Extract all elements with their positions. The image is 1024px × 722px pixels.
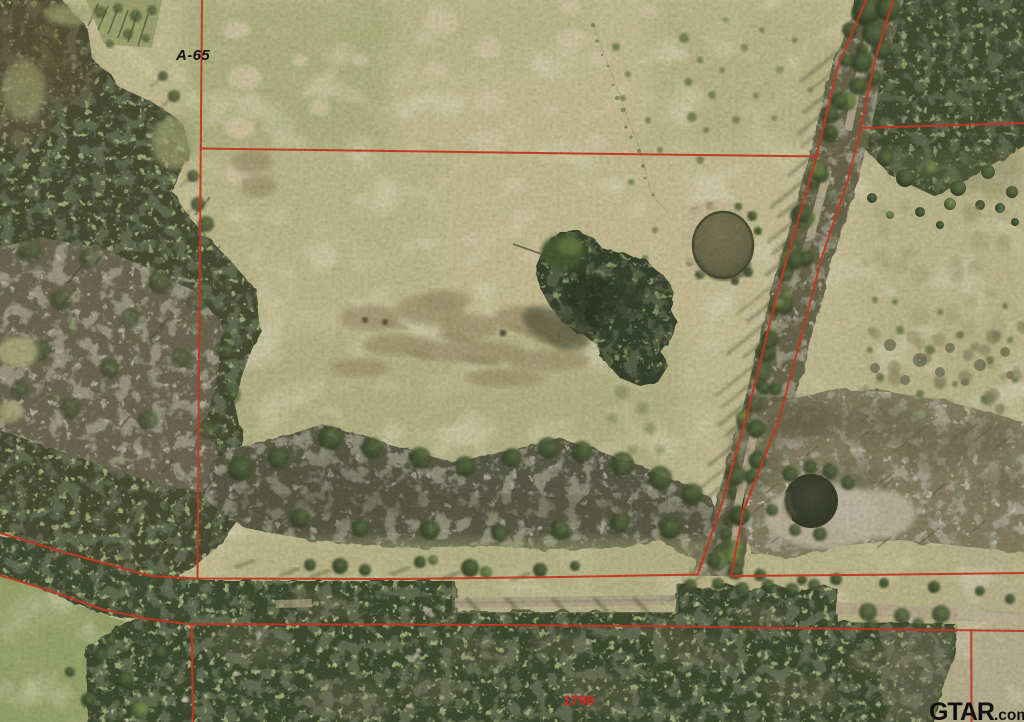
svg-text:A-65: A-65	[175, 47, 210, 64]
svg-text:.com: .com	[994, 707, 1024, 722]
svg-text:1798: 1798	[563, 692, 594, 708]
svg-text:GTAR: GTAR	[929, 698, 995, 722]
